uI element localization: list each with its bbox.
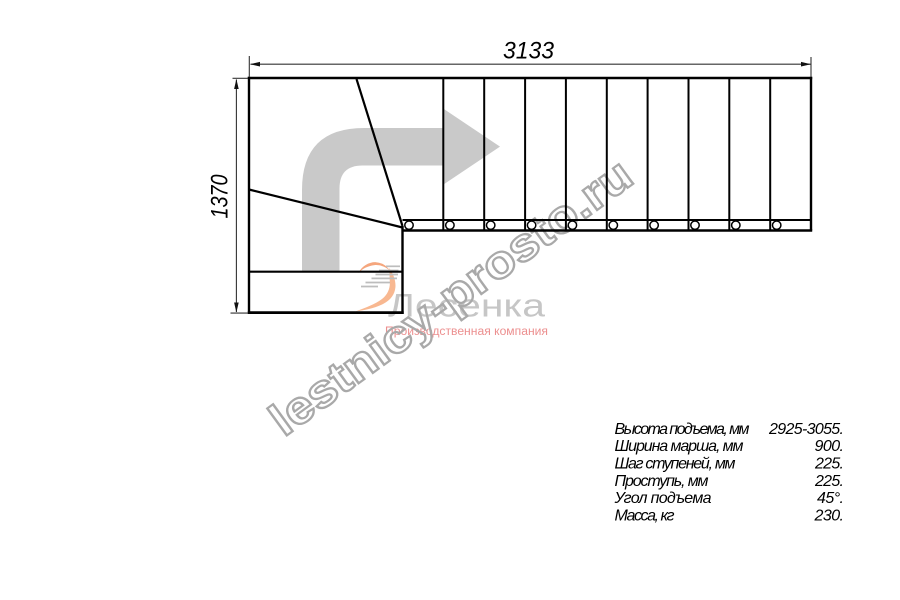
svg-text:Шаг ступеней, мм: Шаг ступеней, мм	[615, 456, 736, 473]
svg-text:Проступь, мм: Проступь, мм	[615, 473, 709, 490]
svg-text:900.: 900.	[815, 438, 845, 455]
svg-text:2925-3055.: 2925-3055.	[768, 421, 844, 438]
svg-text:230.: 230.	[814, 507, 845, 524]
svg-text:45°.: 45°.	[817, 490, 844, 507]
svg-text:Угол подъема: Угол подъема	[614, 490, 712, 507]
svg-text:225.: 225.	[814, 456, 844, 473]
svg-text:3133: 3133	[503, 38, 555, 65]
svg-text:Ширина марша, мм: Ширина марша, мм	[615, 438, 744, 455]
svg-text:225.: 225.	[814, 473, 844, 490]
svg-text:1370: 1370	[207, 174, 234, 219]
svg-text:Масса, кг: Масса, кг	[615, 507, 675, 524]
svg-text:Высота подъема, мм: Высота подъема, мм	[615, 421, 750, 438]
